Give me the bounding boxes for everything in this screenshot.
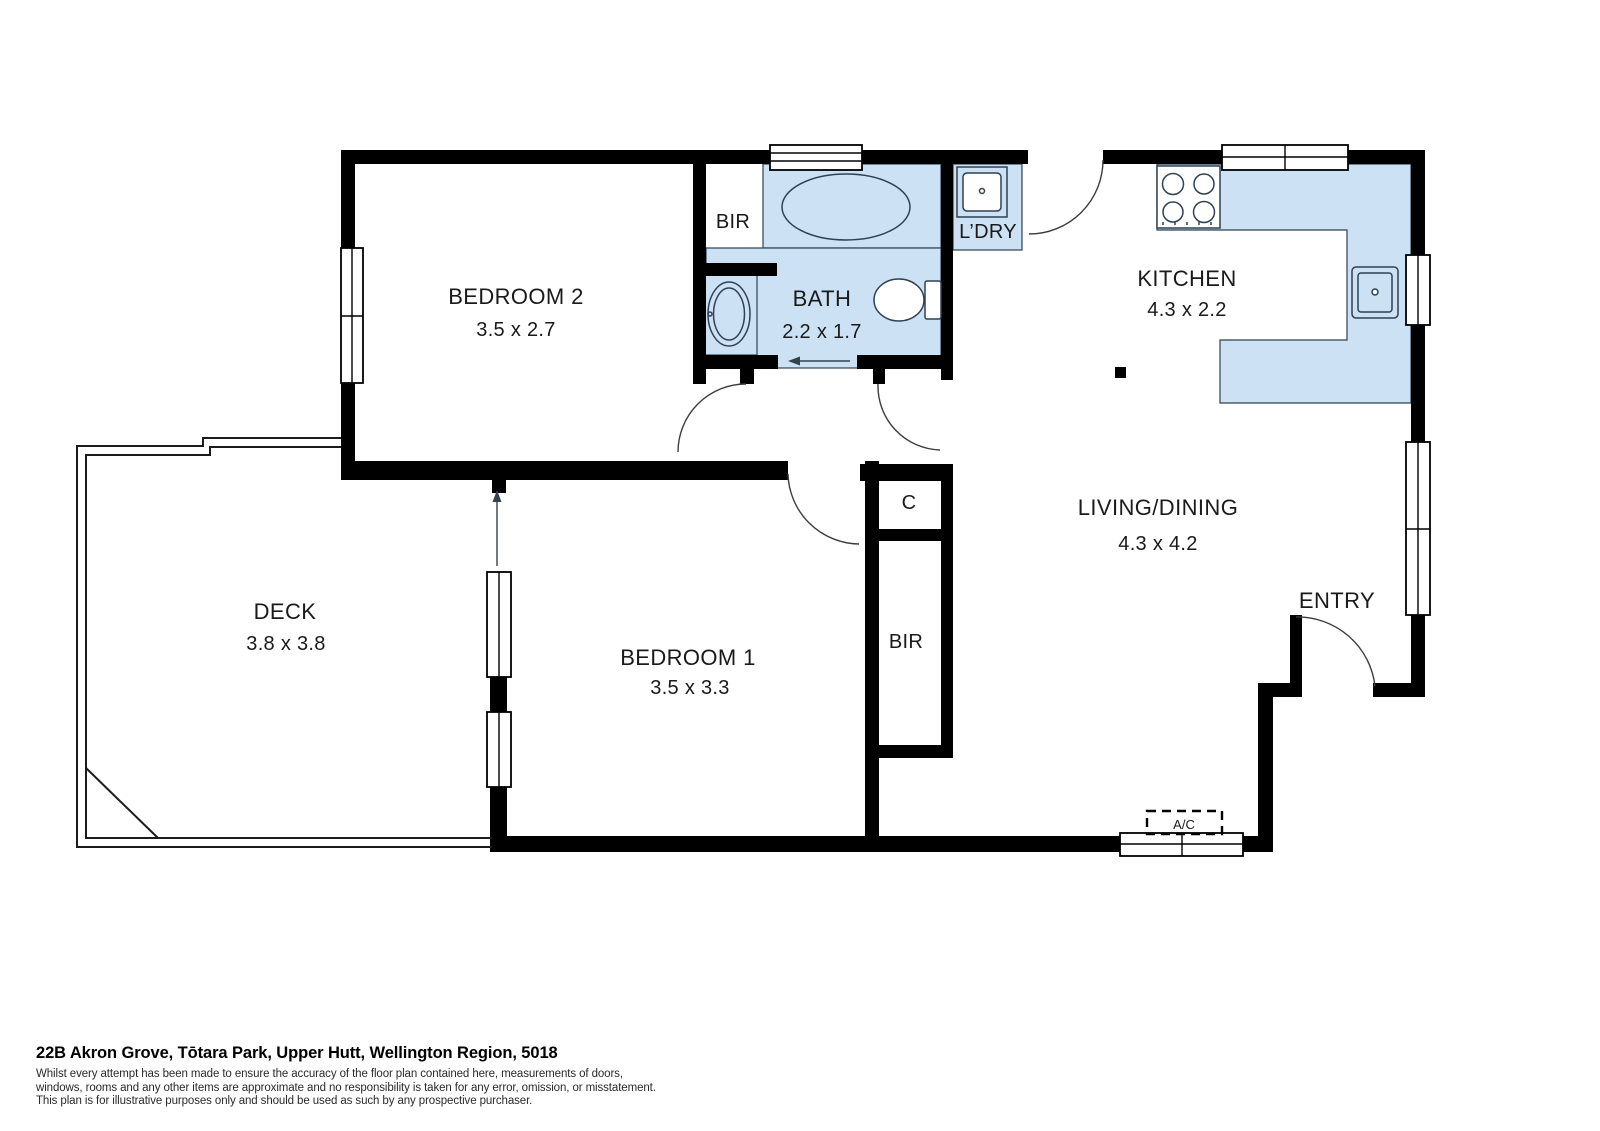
bir-bedroom1-label: BIR bbox=[889, 631, 923, 653]
entry-door-arc bbox=[1296, 617, 1375, 686]
deck-label: DECK bbox=[254, 599, 317, 624]
wall-segment bbox=[492, 836, 1120, 852]
wall-segment bbox=[1258, 697, 1273, 852]
vanity-counter bbox=[702, 275, 757, 355]
bath-tub-area bbox=[763, 164, 941, 248]
living-dims: 4.3 x 4.2 bbox=[1118, 533, 1197, 555]
closet-label: C bbox=[902, 492, 917, 514]
laundry-label: L’DRY bbox=[959, 221, 1017, 243]
disclaimer-line: This plan is for illustrative purposes o… bbox=[36, 1095, 656, 1109]
bath-window bbox=[770, 145, 862, 170]
deck-slider-arrow bbox=[493, 490, 502, 566]
wall-segment bbox=[693, 263, 777, 276]
disclaimer-line: Whilst every attempt has been made to en… bbox=[36, 1068, 656, 1082]
toilet-icon bbox=[874, 279, 941, 321]
entry-label: ENTRY bbox=[1299, 588, 1375, 613]
bir-bath-label: BIR bbox=[716, 211, 750, 233]
disclaimer-line: windows, rooms and any other items are a… bbox=[36, 1082, 656, 1096]
bath-dims: 2.2 x 1.7 bbox=[782, 321, 861, 343]
deck-corner-brace bbox=[86, 768, 158, 838]
disclaimer-text: Whilst every attempt has been made to en… bbox=[36, 1068, 656, 1109]
living-label: LIVING/DINING bbox=[1078, 495, 1238, 520]
kitchen-side-window bbox=[1406, 255, 1430, 325]
bedroom1-door-arc bbox=[788, 474, 859, 544]
wall-segment bbox=[740, 355, 754, 384]
bedroom2-window bbox=[341, 248, 363, 383]
wall-segment bbox=[857, 355, 953, 369]
wet-areas bbox=[702, 164, 1411, 403]
deck-dims: 3.8 x 3.8 bbox=[246, 633, 325, 655]
bedroom2-door-arc bbox=[678, 384, 746, 452]
kitchen-top-window bbox=[1222, 145, 1348, 170]
wall-segment bbox=[492, 480, 506, 493]
wall-segment bbox=[941, 150, 953, 380]
bedroom1-window-upper bbox=[487, 572, 511, 677]
wall-segment bbox=[1373, 683, 1425, 697]
floor-plan-page: { "floorplan": { "colors": { "wet_area_f… bbox=[0, 0, 1600, 1131]
bedroom1-label: BEDROOM 1 bbox=[620, 645, 756, 670]
wall-segment bbox=[865, 529, 953, 541]
laundry-tub-icon bbox=[957, 167, 1007, 217]
floor-plan-drawing: BEDROOM 2 3.5 x 2.7 BIR BATH 2.2 x 1.7 L… bbox=[0, 0, 1600, 1131]
footer: 22B Akron Grove, Tōtara Park, Upper Hutt… bbox=[36, 1044, 656, 1109]
wall-segment bbox=[879, 745, 953, 758]
room-labels: BEDROOM 2 3.5 x 2.7 BIR BATH 2.2 x 1.7 L… bbox=[246, 211, 1375, 832]
kitchen-dims: 4.3 x 2.2 bbox=[1147, 299, 1226, 321]
entry-door-leaf bbox=[1290, 615, 1302, 697]
wall-segment bbox=[490, 677, 507, 712]
hall-door-arc bbox=[878, 384, 940, 450]
kitchen-label: KITCHEN bbox=[1137, 266, 1236, 291]
wall-segment bbox=[693, 355, 778, 369]
air-conditioner-label: A/C bbox=[1173, 817, 1195, 832]
living-side-window bbox=[1406, 442, 1430, 615]
bedroom2-dims: 3.5 x 2.7 bbox=[476, 319, 555, 341]
stove-icon bbox=[1157, 166, 1220, 228]
wall-segment bbox=[341, 461, 788, 480]
wall-segment bbox=[873, 368, 885, 384]
bedroom1-window-lower bbox=[487, 712, 511, 787]
structural-post bbox=[1115, 367, 1126, 378]
property-address: 22B Akron Grove, Tōtara Park, Upper Hutt… bbox=[36, 1044, 656, 1063]
bedroom1-dims: 3.5 x 3.3 bbox=[650, 677, 729, 699]
wall-segment bbox=[341, 150, 1028, 164]
kitchen-door-arc bbox=[1029, 160, 1103, 234]
bath-label: BATH bbox=[793, 286, 852, 311]
bedroom2-label: BEDROOM 2 bbox=[448, 284, 584, 309]
wall-segment bbox=[941, 464, 953, 758]
living-bottom-window bbox=[1120, 833, 1243, 856]
wall-segment bbox=[865, 461, 879, 852]
